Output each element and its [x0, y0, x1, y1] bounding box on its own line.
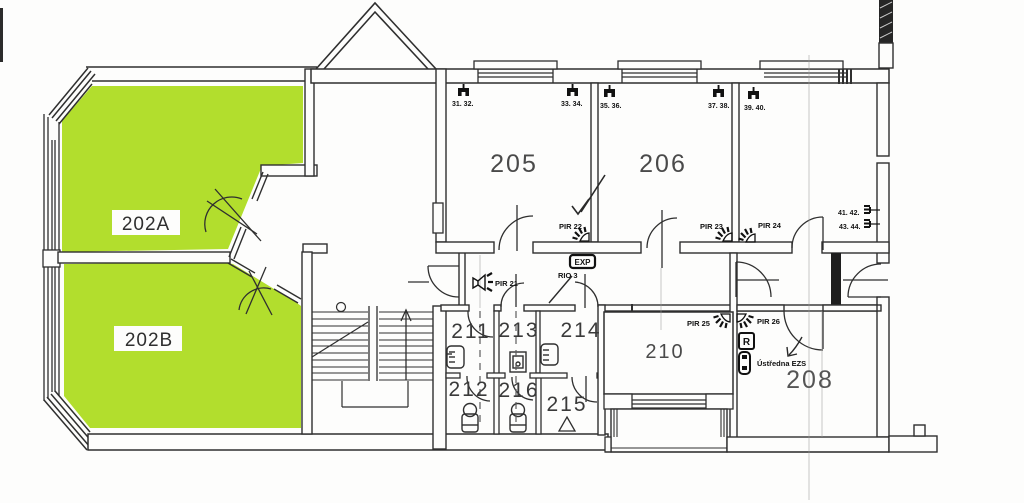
svg-text:205: 205 — [490, 150, 538, 178]
svg-text:31. 32.: 31. 32. — [452, 101, 473, 108]
svg-text:213: 213 — [498, 319, 539, 342]
svg-text:214: 214 — [560, 319, 601, 342]
svg-text:216: 216 — [498, 379, 539, 402]
svg-text:212: 212 — [448, 378, 489, 401]
svg-text:202A: 202A — [122, 214, 170, 235]
svg-text:EXP: EXP — [574, 258, 591, 267]
svg-text:208: 208 — [786, 366, 834, 394]
svg-text:37. 38.: 37. 38. — [708, 103, 729, 110]
svg-text:215: 215 — [546, 393, 587, 416]
svg-text:41. 42.: 41. 42. — [838, 210, 859, 217]
svg-text:39. 40.: 39. 40. — [744, 105, 765, 112]
svg-text:35. 36.: 35. 36. — [600, 103, 621, 110]
svg-text:211: 211 — [451, 320, 490, 343]
svg-text:PIR 25: PIR 25 — [687, 319, 710, 328]
svg-text:202B: 202B — [125, 330, 173, 351]
svg-text:43. 44.: 43. 44. — [839, 224, 860, 231]
svg-text:PIR 21: PIR 21 — [495, 279, 518, 288]
svg-text:RIO 3: RIO 3 — [558, 271, 578, 280]
svg-text:33. 34.: 33. 34. — [561, 101, 582, 108]
svg-text:PIR 26: PIR 26 — [757, 317, 780, 326]
svg-text:210: 210 — [645, 341, 684, 363]
svg-text:R: R — [743, 337, 751, 348]
svg-text:PIR 23: PIR 23 — [700, 222, 723, 231]
svg-text:206: 206 — [639, 150, 687, 178]
svg-text:Ústředna EZS: Ústředna EZS — [757, 359, 806, 368]
svg-text:PIR 22: PIR 22 — [559, 222, 582, 231]
svg-text:PIR 24: PIR 24 — [758, 221, 782, 230]
